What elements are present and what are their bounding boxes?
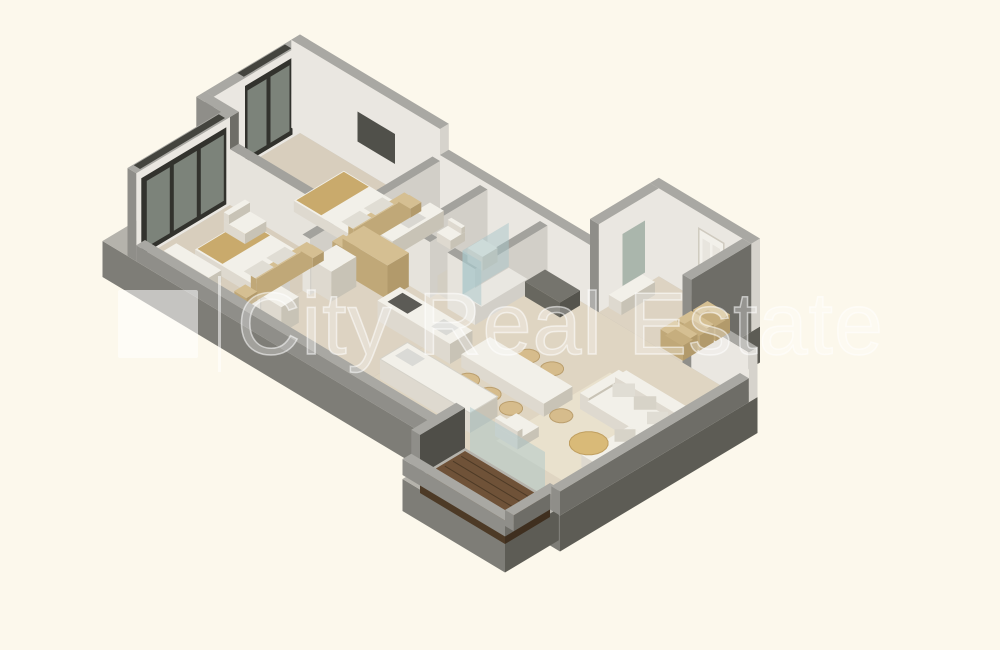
partition-bath-front-side: [430, 238, 438, 299]
wall-bedroom1-window-front: [128, 168, 137, 261]
sofa-pillow: [613, 384, 636, 398]
wall-wing-back-side: [751, 239, 760, 332]
coffee-table: [570, 432, 609, 455]
floor-plan-image: City Real Estate: [0, 0, 1000, 650]
apartment-3d-scene: [103, 35, 761, 573]
window-glass: [174, 151, 197, 231]
isometric-render: [0, 0, 1000, 650]
sofa-pillow: [634, 396, 657, 410]
window-glass: [201, 135, 224, 215]
wall-wing-left-front: [590, 219, 599, 312]
window-glass: [248, 79, 267, 156]
dining-chair: [500, 402, 523, 416]
dining-chair: [550, 409, 573, 423]
window-glass: [271, 65, 290, 142]
wall-back-living-side: [749, 347, 758, 402]
window-glass: [147, 167, 170, 247]
